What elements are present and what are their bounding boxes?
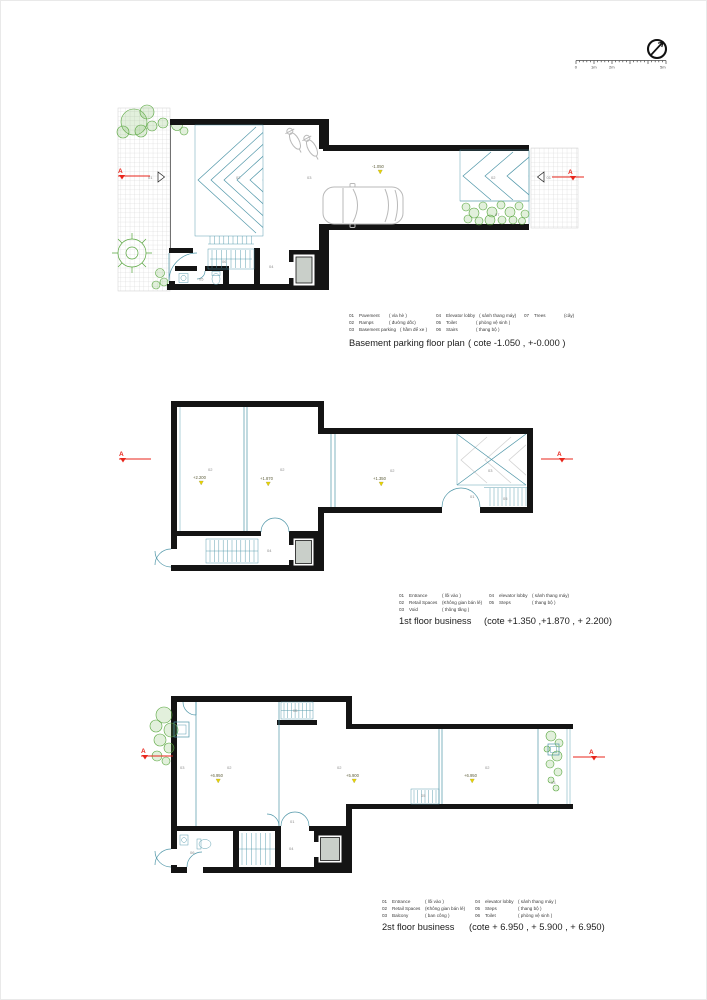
section-marker: A (541, 451, 573, 463)
legend-column: 01Entrance( lối vào ) 02Retail Spaces(Kh… (382, 898, 465, 919)
svg-text:A: A (589, 749, 594, 756)
room-label: 05 (293, 708, 298, 713)
plan-cote: ( cote -1.050 , +-0.000 ) (468, 338, 565, 348)
scale-tick-label: 0 (575, 65, 578, 70)
plan-title: Basement parking floor plan (349, 338, 465, 348)
legend-item: 03Balcony( ban công ) (382, 912, 465, 919)
section-marker: A (119, 451, 151, 463)
room-label: 02 (485, 765, 490, 770)
svg-text:A: A (119, 451, 124, 458)
legend-column: 04Elevator lobby( sảnh thang máy) 05Toil… (436, 312, 516, 333)
plan-title: 2st floor business (382, 922, 454, 932)
room-label: 04 (289, 846, 294, 851)
legend-item: 03Basement parking( hầm để xe ) (349, 326, 427, 333)
legend-item: 06Toilet( phòng vệ sinh ) (475, 912, 556, 919)
level-marker: +1.350 (373, 476, 387, 486)
doors (155, 702, 309, 867)
legend-item: 04Elevator lobby( sảnh thang máy) (436, 312, 516, 319)
lobby-door (261, 518, 289, 532)
room-label: 05 (421, 793, 426, 798)
elevator (313, 831, 347, 867)
scale-tick-label: 2m (609, 65, 615, 70)
plan-cote: (cote +1.350 ,+1.870 , + 2.200) (484, 616, 612, 626)
legend-item: 02Retail Spaces(Không gian bán lẻ) (382, 905, 465, 912)
legend-column: 01Entrance( lối vào ) 02Retail Spaces(Kh… (399, 592, 482, 613)
room-label: 04 (267, 548, 272, 553)
legend-item: 03Void( thông tầng ) (399, 606, 482, 613)
legend-item: 01Entrance( lối vào ) (382, 898, 465, 905)
elevator (288, 534, 319, 570)
room-label: 06 (190, 850, 195, 855)
svg-text:A: A (568, 169, 573, 176)
room-label: 06 (222, 259, 227, 264)
legend-item: 07Trees(cây) (524, 312, 574, 319)
level-marker: +6.950 (464, 773, 478, 783)
drawing-sheet: 0 1m 2m 5m (0, 0, 707, 1000)
exterior-door (155, 549, 171, 567)
legend-column: 04elevator lobby( sảnh thang máy) 05Step… (489, 592, 569, 606)
scale-tick-label: 5m (660, 65, 666, 70)
elevator (288, 250, 320, 290)
legend-item: 05Steps( thang bộ ) (475, 905, 556, 912)
level-marker: +2.200 (193, 475, 207, 485)
svg-text:+6.950: +6.950 (464, 773, 478, 778)
toilet-fixtures (180, 835, 211, 849)
svg-text:+1.870: +1.870 (260, 476, 274, 481)
room-label: 02 (491, 175, 496, 180)
second-floor-plan-drawing: 03 02 02 02 03 05 05 01 06 04 +6.950 +5.… (101, 686, 611, 886)
scale-tick-label: 1m (591, 65, 597, 70)
room-label: 04 (269, 264, 274, 269)
level-marker: +1.870 (260, 476, 274, 486)
legend-item: 06Stairs( thang bộ ) (436, 326, 516, 333)
room-label: 02 (208, 467, 213, 472)
room-label: 02 (236, 175, 241, 180)
north-arrow-icon (648, 40, 666, 58)
legend-column: 01Pavement( vỉa hè ) 02Ramps( đường dốc)… (349, 312, 427, 333)
scale-bar: 0 1m 2m 5m (575, 61, 666, 70)
svg-text:+1.350: +1.350 (373, 476, 387, 481)
legend-item: 01Entrance( lối vào ) (399, 592, 482, 599)
svg-text:A: A (141, 748, 146, 755)
walls (171, 401, 533, 571)
first-floor-legend: 01Entrance( lối vào ) 02Retail Spaces(Kh… (399, 592, 609, 632)
second-floor-legend: 01Entrance( lối vào ) 02Retail Spaces(Kh… (382, 898, 592, 938)
room-label: 03 (551, 780, 556, 785)
svg-text:+2.200: +2.200 (193, 475, 207, 480)
legend-item: 02Ramps( đường dốc) (349, 319, 427, 326)
svg-text:-1.050: -1.050 (372, 164, 385, 169)
pavement-grid (118, 108, 578, 291)
legend-item: 01Pavement( vỉa hè ) (349, 312, 427, 319)
legend-column: 04elevator lobby( sảnh thang máy ) 05Ste… (475, 898, 556, 919)
svg-text:A: A (118, 168, 123, 175)
basement-plan-drawing: 01 02 03 02 07 01 04 05 06 -1.050 A A (101, 96, 601, 311)
svg-text:+5.900: +5.900 (346, 773, 360, 778)
basement-legend: 01Pavement( vỉa hè ) 02Ramps( đường dốc)… (349, 312, 604, 352)
plan-cote: (cote + 6.950 , + 5.900 , + 6.950) (469, 922, 605, 932)
walls (171, 696, 573, 873)
legend-item: 05Steps( thang bộ ) (489, 599, 569, 606)
level-marker: -1.050 (372, 164, 385, 174)
plan-title: 1st floor business (399, 616, 471, 626)
room-label: 05 (199, 277, 204, 282)
first-floor-plan-drawing: 02 02 02 03 01 05 04 +2.200 +1.870 +1.35… (101, 391, 601, 586)
svg-text:A: A (557, 451, 562, 458)
room-label: 07 (495, 212, 500, 217)
level-marker: +6.950 (210, 773, 224, 783)
void-cross (457, 434, 535, 485)
room-label: 03 (307, 175, 312, 180)
stairs (206, 539, 258, 563)
room-label: 02 (280, 467, 285, 472)
stairs (239, 833, 275, 865)
room-label: 05 (503, 496, 508, 501)
legend-item: 05Toilet( phòng vệ sinh ) (436, 319, 516, 326)
room-label: 03 (180, 765, 185, 770)
room-label: 01 (290, 819, 295, 824)
svg-text:+6.950: +6.950 (210, 773, 224, 778)
scooter-icon (284, 126, 306, 155)
ramp-chevrons (195, 125, 321, 244)
section-marker: A (573, 749, 605, 761)
sheet-key: 0 1m 2m 5m (556, 29, 706, 79)
room-label: 03 (488, 468, 493, 473)
legend-item: 04elevator lobby( sảnh thang máy) (489, 592, 569, 599)
legend-item: 04elevator lobby( sảnh thang máy ) (475, 898, 556, 905)
room-label: 02 (337, 765, 342, 770)
legend-column: 07Trees(cây) (524, 312, 574, 319)
car-icon (323, 184, 403, 228)
room-label: 02 (227, 765, 232, 770)
room-label: 02 (390, 468, 395, 473)
room-label: 01 (470, 494, 475, 499)
room-label: 01 (547, 175, 552, 180)
level-marker: +5.900 (346, 773, 360, 783)
legend-item: 02Retail Spaces(Không gian bán lẻ) (399, 599, 482, 606)
